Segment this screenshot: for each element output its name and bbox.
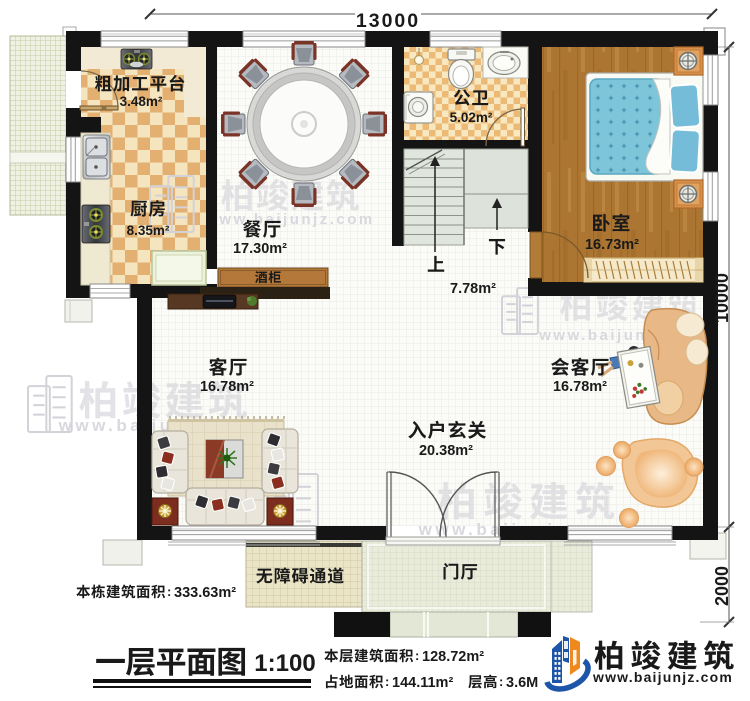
svg-text:1:100: 1:100 [254,650,315,677]
svg-text:10000: 10000 [712,273,732,323]
svg-text:16.78m²: 16.78m² [553,379,607,395]
svg-text:20.38m²: 20.38m² [419,443,473,459]
svg-text::: : [385,674,389,689]
svg-text:16.78m²: 16.78m² [200,379,254,395]
svg-text:www.baijunjz.com: www.baijunjz.com [592,669,733,685]
svg-text::: : [415,648,419,663]
svg-text:3.6M: 3.6M [506,675,538,691]
svg-text:2000: 2000 [712,566,732,606]
svg-text:17.30m²: 17.30m² [233,241,287,257]
svg-text:8.35m²: 8.35m² [127,223,170,238]
svg-text:128.72m²: 128.72m² [422,649,484,665]
svg-text:144.11m²: 144.11m² [392,675,453,691]
svg-text:7.78m²: 7.78m² [450,281,496,297]
svg-text:333.63m²: 333.63m² [174,585,236,601]
svg-text:5.02m²: 5.02m² [450,110,493,125]
svg-text:3.48m²: 3.48m² [120,94,163,109]
svg-text::: : [499,674,503,689]
svg-text:16.73m²: 16.73m² [585,237,639,253]
svg-text::: : [167,584,171,599]
svg-text:www.baijunjz.com: www.baijunjz.com [204,211,374,228]
svg-text:13000: 13000 [356,10,420,32]
